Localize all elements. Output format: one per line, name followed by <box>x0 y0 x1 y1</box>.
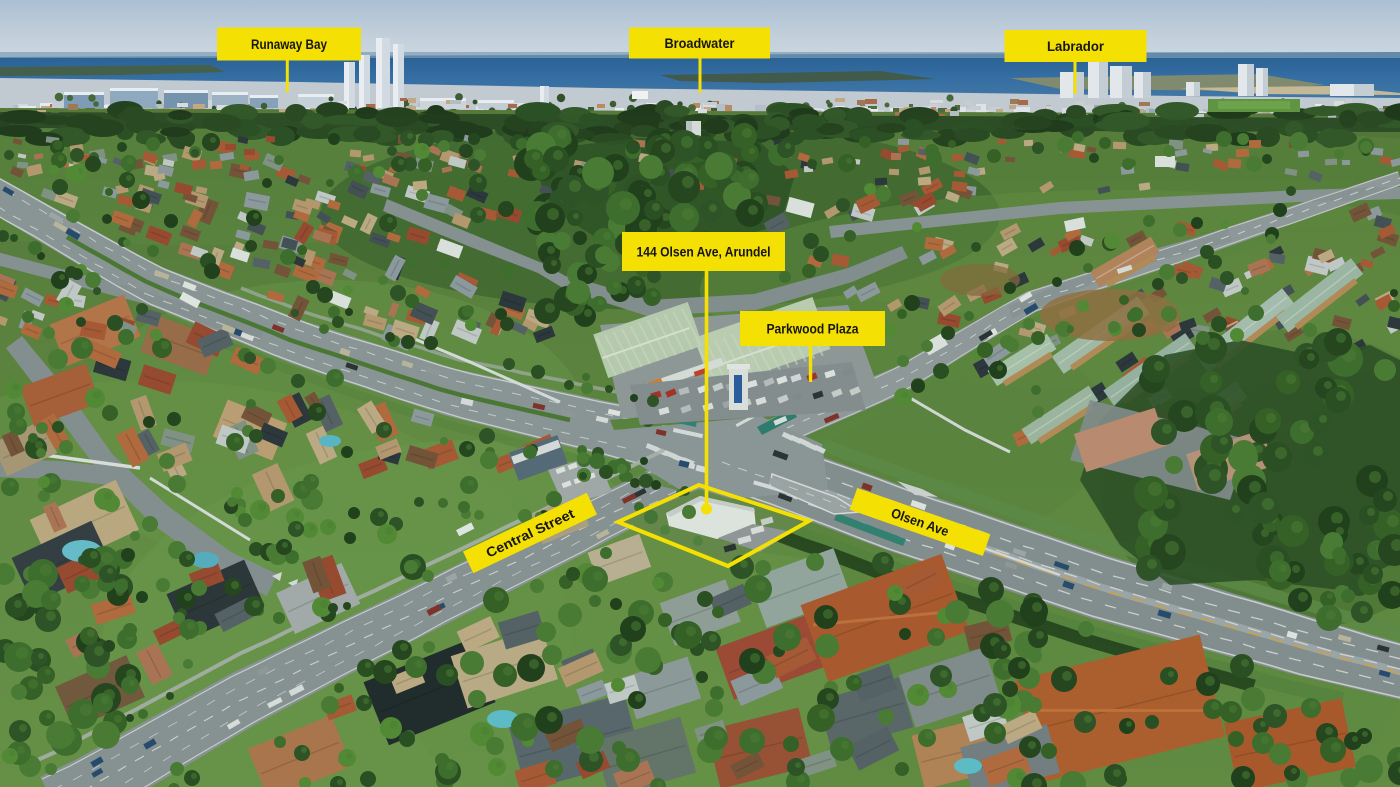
svg-text:Labrador: Labrador <box>1047 39 1105 54</box>
svg-text:Runaway Bay: Runaway Bay <box>251 37 327 52</box>
svg-text:144 Olsen Ave, Arundel: 144 Olsen Ave, Arundel <box>637 244 771 259</box>
svg-text:Broadwater: Broadwater <box>665 36 736 51</box>
svg-text:Parkwood Plaza: Parkwood Plaza <box>767 321 859 336</box>
